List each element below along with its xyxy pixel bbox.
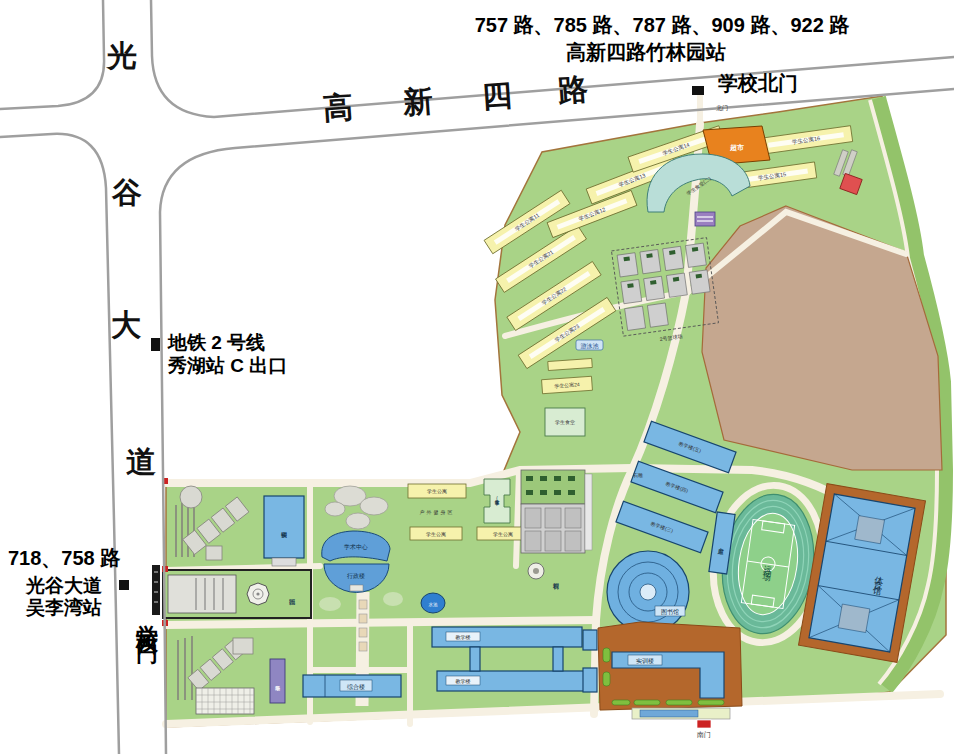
fitness-area-label: 户外健身区 xyxy=(420,509,455,516)
svg-text:教学楼: 教学楼 xyxy=(456,634,471,641)
svg-text:游泳池: 游泳池 xyxy=(581,342,599,350)
campus-map-screenshot: 学生公寓11 学生公寓21 学生公寓22 学生公寓23 学生公寓12 学生公寓1… xyxy=(0,0,954,754)
svg-text:学生公寓: 学生公寓 xyxy=(493,531,513,537)
pond: 水池 xyxy=(421,593,445,613)
svg-text:图书馆: 图书馆 xyxy=(661,608,679,616)
north-gate-label: 学校北门 xyxy=(718,70,798,97)
building-parking: 停车场 xyxy=(270,659,285,703)
svg-text:超市: 超市 xyxy=(729,143,744,152)
building-training-west: 实训楼 xyxy=(264,496,304,566)
road-name-guanggu-char1: 光 xyxy=(107,36,137,77)
svg-text:教学楼: 教学楼 xyxy=(456,678,471,685)
north-gate-small-label: 北门 xyxy=(716,104,728,112)
svg-text:综合楼: 综合楼 xyxy=(347,683,365,691)
volleyball-courts xyxy=(521,470,592,553)
svg-text:学生公寓: 学生公寓 xyxy=(427,488,447,494)
svg-text:实训楼: 实训楼 xyxy=(636,658,654,664)
svg-text:学生公寓: 学生公寓 xyxy=(426,531,446,537)
road-name-guanggu-char3: 大 xyxy=(111,305,141,346)
metro-exit-marker xyxy=(151,338,160,351)
map-canvas: 学生公寓11 学生公寓21 学生公寓22 学生公寓23 学生公寓12 学生公寓1… xyxy=(0,0,954,754)
svg-text:学术中心: 学术中心 xyxy=(344,544,368,550)
lawn-patch xyxy=(319,597,341,611)
svg-text:行政楼: 行政楼 xyxy=(347,572,365,579)
stone-sculpture-label: 石雕 xyxy=(633,472,643,479)
south-gate: 南门 xyxy=(632,708,730,738)
grid-structure xyxy=(196,688,254,714)
road-name-guanggu-char4: 道 xyxy=(126,442,156,483)
building-canteen-3: 学生食堂 xyxy=(545,408,585,436)
road-name-guanggu-char2: 谷 xyxy=(112,173,142,214)
utility-building xyxy=(695,212,715,226)
formal-garden: 德园 xyxy=(163,570,311,618)
svg-text:学生食堂: 学生食堂 xyxy=(555,419,575,425)
building-dorm-c1: 学生公寓 xyxy=(408,484,466,498)
bus-routes-north-line2: 高新四路竹林园站 xyxy=(566,39,726,66)
road-name-gaoxin-char3: 四 xyxy=(481,75,514,118)
building-dorm-24: 学生公寓24 xyxy=(542,376,593,393)
pool-sign: 游泳池 xyxy=(576,340,603,350)
bus-routes-west-line1: 718、758 路 xyxy=(8,545,120,572)
west-gate-label: 学校西门 xyxy=(132,607,162,627)
bus-routes-west-line3: 吴李湾站 xyxy=(8,595,120,621)
building-complex: 综合楼 xyxy=(303,675,401,697)
road-name-gaoxin-char1: 高 xyxy=(322,87,355,130)
bus-stop-marker xyxy=(119,580,129,590)
svg-text:南门: 南门 xyxy=(697,731,711,738)
road-name-gaoxin-char2: 新 xyxy=(402,81,435,124)
north-gate-marker xyxy=(692,86,704,95)
building-dorm-c2: 学生公寓 xyxy=(410,527,462,540)
metro-label-line2: 秀湖站 C 出口 xyxy=(168,353,287,379)
building-training-se: 实训楼 xyxy=(598,622,742,710)
road-left-line xyxy=(0,134,119,754)
road-name-gaoxin-char4: 路 xyxy=(557,69,590,112)
lawn-patch xyxy=(383,592,403,606)
building-library: 图书馆 xyxy=(607,551,689,633)
road-corner-nw xyxy=(0,0,104,109)
bus-routes-north-line1: 757 路、785 路、787 路、909 路、922 路 xyxy=(475,12,850,39)
svg-text:学生食堂(一): 学生食堂(一) xyxy=(494,496,500,506)
